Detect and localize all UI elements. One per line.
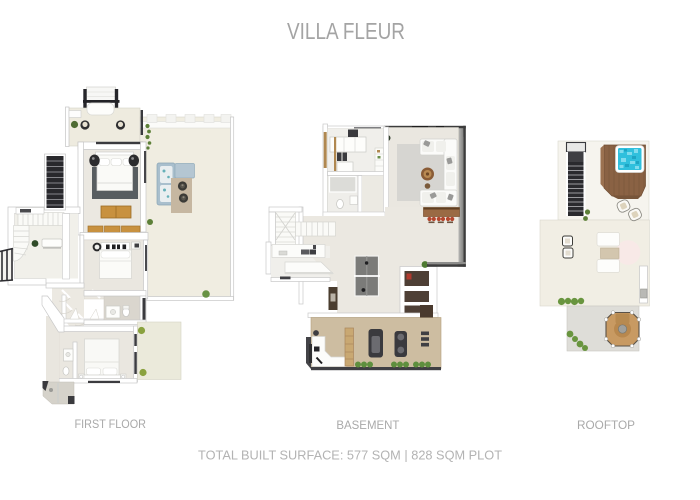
svg-text:FIRST FLOOR: FIRST FLOOR <box>75 417 147 431</box>
svg-text:ROOFTOP: ROOFTOP <box>577 418 635 432</box>
svg-text:TOTAL BUILT SURFACE: 577 SQM |: TOTAL BUILT SURFACE: 577 SQM | 828 SQM P… <box>198 448 502 463</box>
svg-text:BASEMENT: BASEMENT <box>336 418 399 432</box>
svg-text:VILLA FLEUR: VILLA FLEUR <box>287 18 405 44</box>
